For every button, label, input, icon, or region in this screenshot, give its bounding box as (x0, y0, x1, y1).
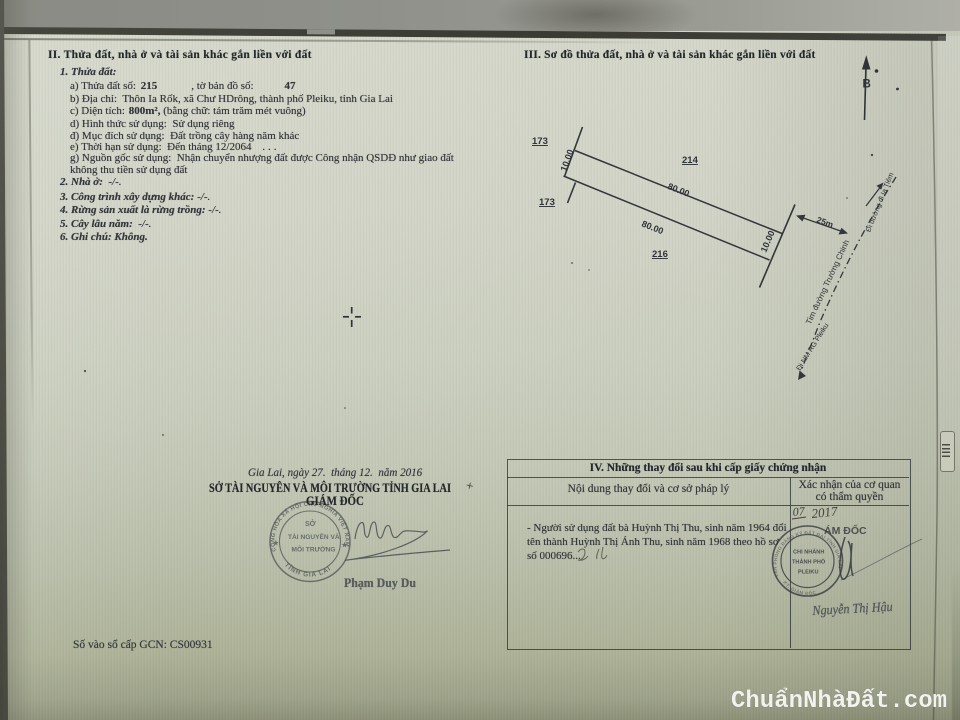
svg-text:TÀI NGUYÊN VÀ: TÀI NGUYÊN VÀ (288, 532, 340, 541)
svg-text:10.00: 10.00 (759, 229, 777, 254)
svg-text:80.00: 80.00 (666, 181, 691, 199)
svg-text:★: ★ (273, 539, 280, 547)
svg-text:Tim đường Trường Chinh: Tim đường Trường Chinh (804, 238, 851, 325)
svg-text:Đi NM RG Pleiku: Đi NM RG Pleiku (794, 321, 830, 372)
svg-text:214: 214 (682, 155, 699, 166)
svg-text:MÔI TRƯỜNG: MÔI TRƯỜNG (292, 545, 336, 554)
svg-text:173: 173 (539, 197, 555, 208)
svg-text:B: B (863, 79, 871, 91)
svg-text:80.00: 80.00 (640, 219, 665, 237)
svg-text:SỞ: SỞ (305, 519, 316, 528)
svg-text:216: 216 (652, 249, 668, 260)
svg-text:10.00: 10.00 (558, 148, 575, 173)
svg-text:173: 173 (532, 136, 548, 147)
